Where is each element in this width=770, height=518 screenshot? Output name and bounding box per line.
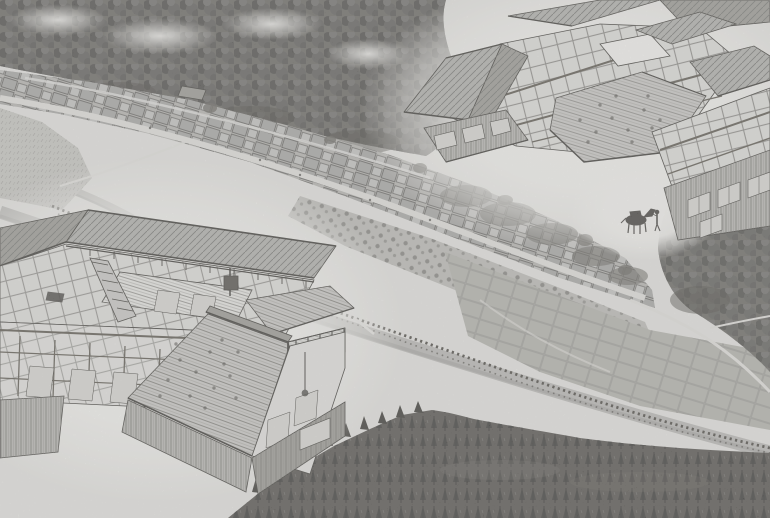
post-town-illustration xyxy=(0,0,770,518)
grain-overlay xyxy=(0,0,770,518)
illustration-svg xyxy=(0,0,770,518)
